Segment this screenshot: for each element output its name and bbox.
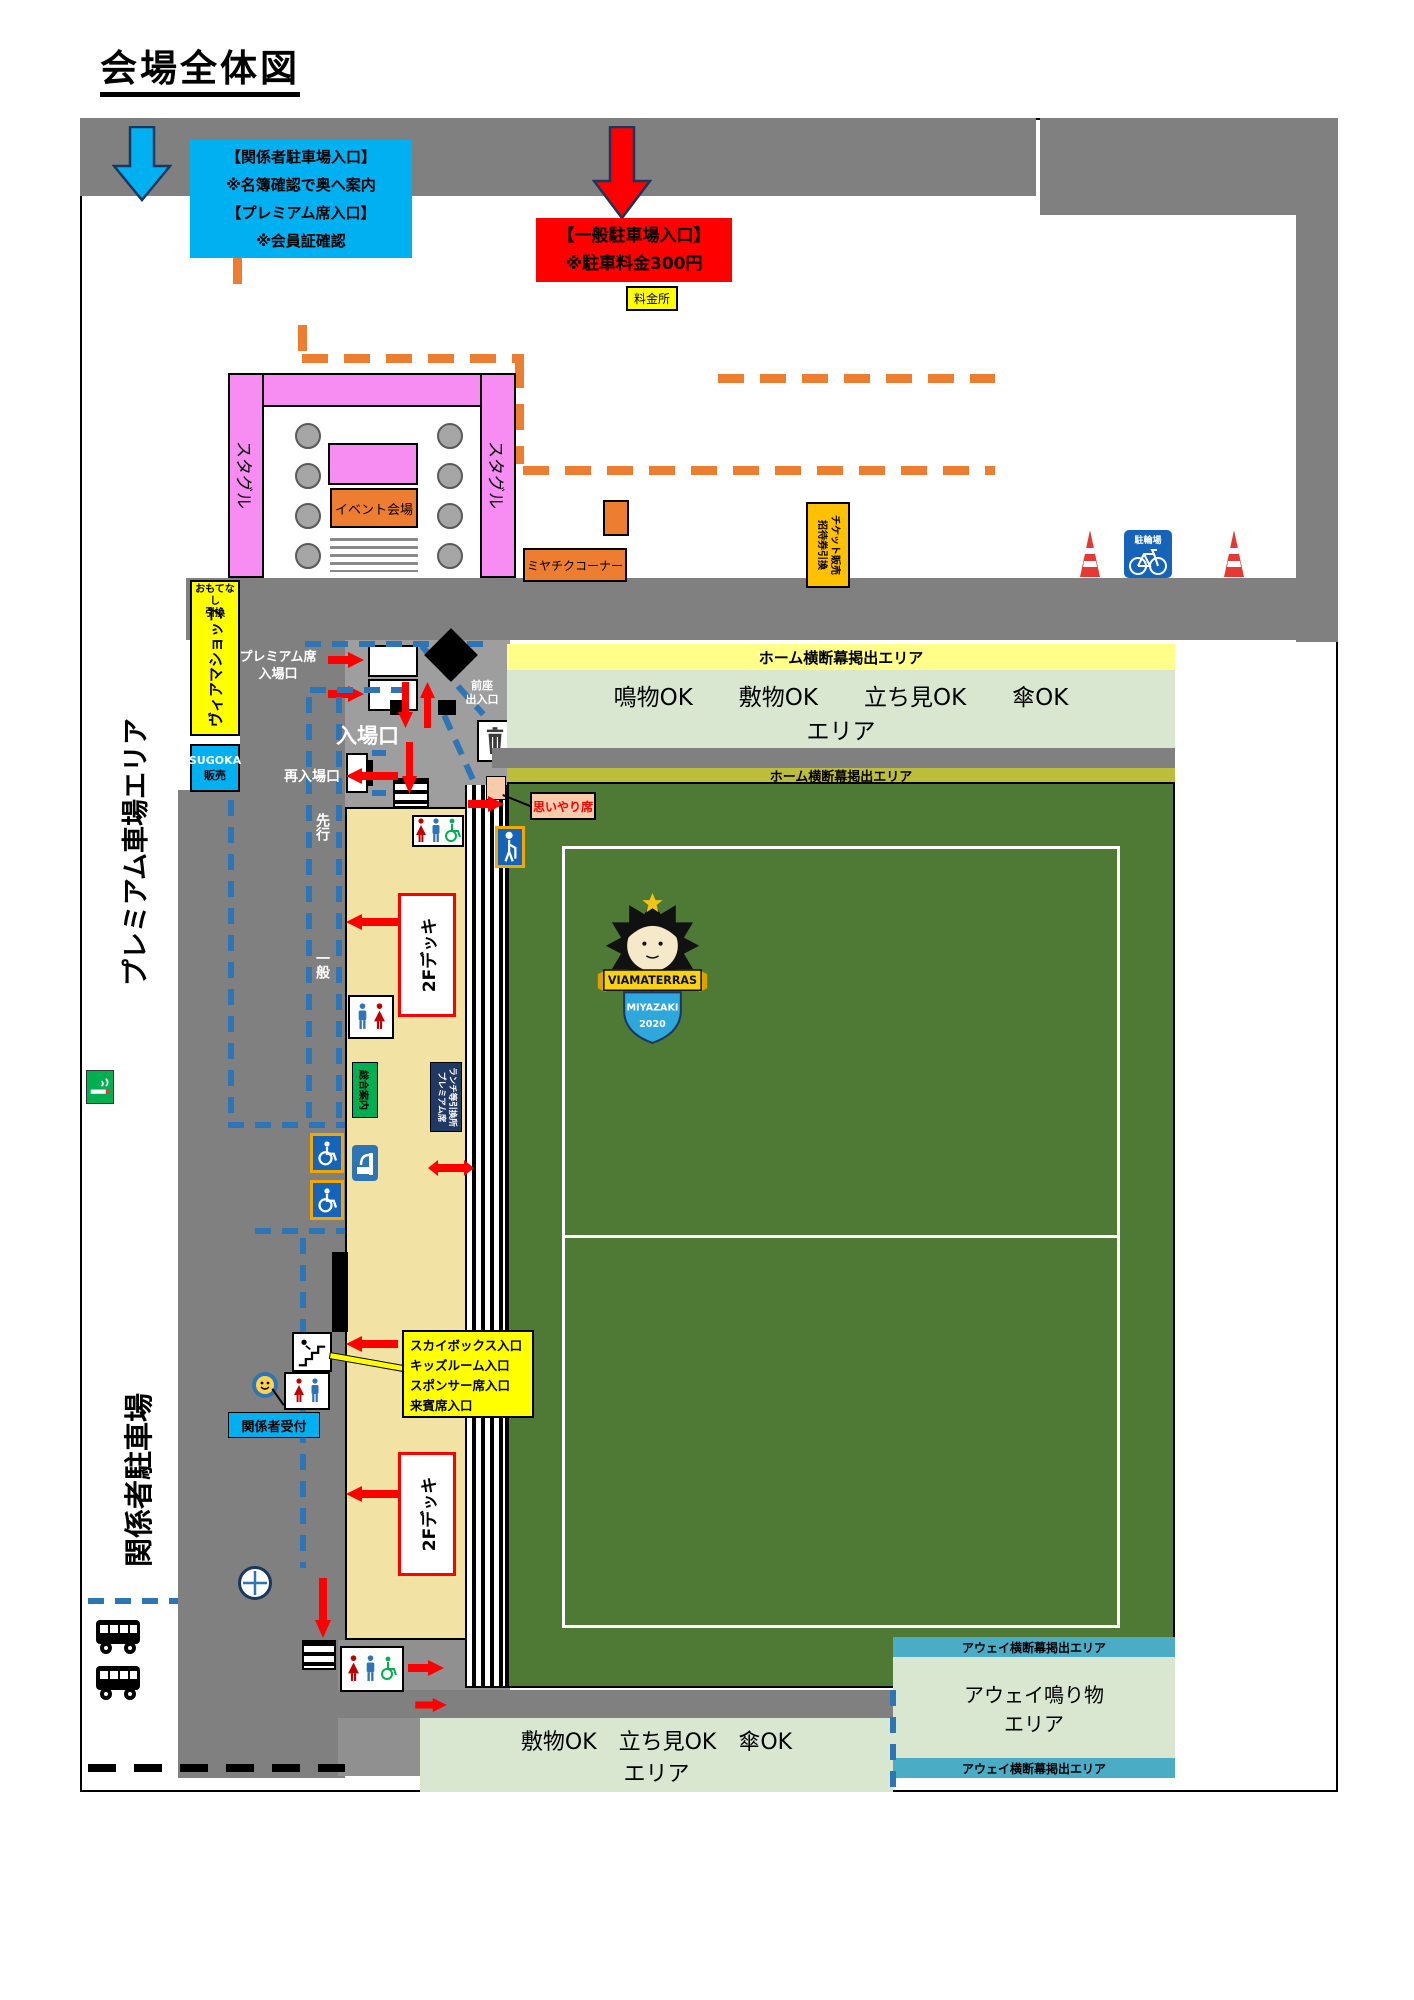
crest-year: 2020 bbox=[639, 1019, 666, 1030]
plaza-circle bbox=[437, 423, 463, 449]
road-top-right bbox=[1040, 118, 1338, 215]
traffic-cone-icon bbox=[1222, 528, 1246, 580]
down-arrow-icon bbox=[402, 742, 417, 794]
walk-route-dash bbox=[372, 790, 386, 796]
premium-exchange-label: ランチ等引換所 プレミアム席 bbox=[433, 1065, 459, 1129]
wheelchair-sign bbox=[310, 1133, 344, 1173]
priority-seat-icon bbox=[499, 830, 521, 864]
skybox-callout-box: スカイボックス入口 キッズルーム入口 スポンサー席入口 来賓席入口 bbox=[402, 1330, 534, 1418]
pitch-halfway-line bbox=[562, 1235, 1120, 1238]
crosshair-icon bbox=[238, 1566, 272, 1600]
plaza-circle bbox=[295, 463, 321, 489]
wheelchair-icon bbox=[315, 1186, 339, 1214]
general-parking-line: ※駐車料金300円 bbox=[565, 250, 702, 278]
home-free-area-line2: エリア bbox=[507, 712, 1175, 746]
smoking-area-sign bbox=[86, 1070, 114, 1104]
toilet-man-icon bbox=[430, 818, 442, 844]
away-banner-strip-top: アウェイ横断幕掲出エリア bbox=[893, 1637, 1175, 1657]
plaza-circle bbox=[295, 543, 321, 569]
plaza-stage bbox=[328, 443, 418, 485]
wheelchair-icon bbox=[381, 1653, 397, 1685]
ticket-booth-label: チケット販売 招待券引換 bbox=[813, 505, 843, 585]
toilet-sign bbox=[412, 815, 464, 847]
smoking-icon bbox=[89, 1074, 111, 1100]
walk-route-dash bbox=[228, 1122, 345, 1128]
invitation-exchange-label: 招待券引換 bbox=[815, 520, 828, 570]
general-lane-label: 一般 bbox=[308, 938, 336, 992]
staff-parking-info-box: 【関係者駐車場入口】 ※名簿確認で奥へ案内 【プレミアム席入口】 ※会員証確認 bbox=[190, 140, 412, 258]
plaza-circle bbox=[437, 503, 463, 529]
premium-gate-box bbox=[368, 645, 418, 677]
viamaterras-crest: VIAMATERRAS MIYAZAKI 2020 bbox=[590, 893, 715, 1045]
bottom-free-area-line1: 敷物OK 立ち見OK 傘OK bbox=[420, 1724, 893, 1756]
walk-route-dash bbox=[306, 697, 312, 1125]
wheelchair-icon bbox=[315, 1139, 339, 1167]
premium-car-area-label: プレミアム車場エリア bbox=[111, 667, 155, 1037]
right-arrow-icon bbox=[468, 796, 504, 812]
away-area-line2: エリア bbox=[893, 1708, 1175, 1737]
toll-booth-label: 料金所 bbox=[626, 286, 678, 311]
staff-parking-line: ※会員証確認 bbox=[256, 227, 346, 255]
double-arrow-icon bbox=[428, 1160, 474, 1176]
home-free-area-line1: 鳴物OK 敷物OK 立ち見OK 傘OK bbox=[507, 678, 1175, 712]
home-banner-strip-bottom: ホーム横断幕掲出エリア bbox=[507, 768, 1175, 782]
bus-icon bbox=[94, 1616, 142, 1658]
toilet-woman-icon bbox=[415, 818, 427, 844]
sponsor-entrance-label: スポンサー席入口 bbox=[410, 1376, 526, 1396]
toilet-sign bbox=[348, 995, 394, 1039]
drinking-fountain-sign bbox=[352, 1145, 378, 1181]
car-route-dash bbox=[515, 362, 524, 464]
walk-route-dash bbox=[336, 697, 342, 1125]
staff-entrance-arrow-icon bbox=[112, 126, 172, 202]
bus-icon bbox=[94, 1662, 142, 1704]
venue-map: 会場全体図 【関係者駐車場入口】 ※名簿確認で奥へ案内 【プレミアム席入口】 ※… bbox=[0, 0, 1414, 2000]
plaza-circle bbox=[437, 543, 463, 569]
priority-lane-label: 先行 bbox=[308, 800, 336, 854]
toilet-woman-icon bbox=[293, 1377, 305, 1405]
down-arrow-icon bbox=[315, 1578, 331, 1638]
general-parking-line: 【一般駐車場入口】 bbox=[558, 222, 711, 250]
road-middle bbox=[186, 578, 1338, 640]
toilet-man-icon bbox=[364, 1653, 377, 1685]
away-banner-strip-bottom: アウェイ横断幕掲出エリア bbox=[893, 1758, 1175, 1778]
guest-entrance-label: 来賓席入口 bbox=[410, 1396, 526, 1416]
walk-route-dash bbox=[88, 1598, 178, 1604]
general-parking-info-box: 【一般駐車場入口】 ※駐車料金300円 bbox=[536, 218, 732, 282]
plaza-top-bar bbox=[262, 373, 482, 407]
staff-parking-area-label: 関係者駐車場 bbox=[115, 1380, 159, 1580]
sugoka-box: SUGOKA 販売 bbox=[190, 744, 240, 792]
left-arrow-icon bbox=[346, 914, 398, 930]
info-center-label: 総合案内 bbox=[354, 1064, 376, 1116]
premium-gate-label: プレミアム席 入場口 bbox=[238, 648, 318, 684]
bottom-free-area-line2: エリア bbox=[420, 1756, 893, 1788]
right-arrow-icon bbox=[415, 1698, 447, 1712]
car-route-dash bbox=[233, 258, 242, 294]
gate-bar bbox=[332, 1252, 348, 1332]
area-separator-dash bbox=[890, 1690, 896, 1790]
car-route-dash bbox=[718, 374, 995, 383]
kidsroom-entrance-label: キッズルーム入口 bbox=[410, 1356, 526, 1376]
stagle-label-right: スタグル bbox=[480, 390, 516, 560]
right-arrow-icon bbox=[408, 1660, 444, 1676]
sugoka-sales-label: 販売 bbox=[204, 768, 226, 783]
omotenashi-label: おもてなし bbox=[192, 584, 238, 608]
toilet-sign bbox=[284, 1372, 330, 1410]
main-gate-label: 入場口 bbox=[336, 720, 399, 750]
left-arrow-icon bbox=[346, 1486, 398, 1502]
toilet-man-icon bbox=[309, 1377, 321, 1405]
sugoka-label: SUGOKA bbox=[189, 753, 241, 768]
car-route-dash bbox=[523, 466, 995, 475]
stairs-bottom bbox=[302, 1640, 336, 1670]
gate-bar bbox=[438, 700, 456, 715]
up-arrow-icon bbox=[420, 682, 435, 728]
stairs-icon bbox=[297, 1337, 327, 1367]
plaza-circle bbox=[295, 423, 321, 449]
boundary-dash bbox=[88, 1764, 345, 1772]
toilet-woman-icon bbox=[373, 1001, 386, 1033]
general-entrance-arrow-icon bbox=[592, 126, 652, 220]
right-arrow-icon bbox=[328, 652, 364, 668]
omoiyari-seat-label: 思いやり席 bbox=[530, 792, 596, 820]
road-right bbox=[1296, 196, 1338, 642]
event-venue-box: イベント会場 bbox=[330, 488, 418, 528]
down-arrow-icon bbox=[398, 682, 413, 728]
miyachiku-corner-box: ミヤチクコーナー bbox=[523, 548, 627, 582]
bicycle-parking-sign: 駐輪場 bbox=[1124, 530, 1172, 578]
home-banner-strip-top: ホーム横断幕掲出エリア bbox=[507, 644, 1175, 670]
left-arrow-icon bbox=[346, 1336, 398, 1352]
walk-route-dash bbox=[372, 750, 386, 756]
deck-2f-label: 2Fデッキ bbox=[407, 900, 447, 1010]
plaza-circle bbox=[295, 503, 321, 529]
plaza-stage-lines bbox=[330, 538, 418, 572]
left-arrow-icon bbox=[346, 768, 398, 784]
skybox-entrance-label: スカイボックス入口 bbox=[410, 1336, 526, 1356]
smiley-icon bbox=[255, 1375, 275, 1395]
away-free-area: アウェイ鳴り物 エリア bbox=[893, 1657, 1175, 1758]
crest-team-name: VIAMATERRAS bbox=[608, 974, 697, 987]
orange-booth bbox=[603, 500, 629, 536]
car-route-dash bbox=[302, 354, 524, 363]
staff-reception-label: 関係者受付 bbox=[228, 1412, 320, 1438]
ticket-sales-label: チケット販売 bbox=[828, 515, 841, 575]
crest-city: MIYAZAKI bbox=[626, 1003, 678, 1014]
page-title: 会場全体図 bbox=[100, 38, 300, 92]
bicycle-icon bbox=[1124, 546, 1172, 578]
toilet-man-icon bbox=[356, 1001, 369, 1033]
skybox-stairs-sign bbox=[292, 1332, 332, 1372]
home-free-area: 鳴物OK 敷物OK 立ち見OK 傘OK エリア bbox=[507, 670, 1175, 748]
via-shop-label: ヴィアマショップ bbox=[192, 607, 238, 727]
drinking-fountain-icon bbox=[355, 1149, 375, 1177]
deck-2f-label: 2Fデッキ bbox=[407, 1459, 447, 1569]
staff-parking-line: 【関係者駐車場入口】 bbox=[226, 143, 376, 171]
terrace-steps bbox=[465, 785, 507, 1688]
priority-seat-sign bbox=[495, 826, 525, 868]
toilet-woman-icon bbox=[347, 1653, 360, 1685]
wheelchair-icon bbox=[445, 818, 461, 844]
via-shop-box: おもてなし 引換 ヴィアマショップ bbox=[190, 580, 240, 736]
bottom-free-area: 敷物OK 立ち見OK 傘OK エリア bbox=[420, 1718, 893, 1792]
away-area-line1: アウェイ鳴り物 bbox=[893, 1679, 1175, 1708]
stagle-label-left: スタグル bbox=[228, 390, 264, 560]
plaza-circle bbox=[437, 463, 463, 489]
walk-route-dash bbox=[228, 800, 234, 1122]
bicycle-parking-label: 駐輪場 bbox=[1124, 533, 1172, 546]
walk-route-dash bbox=[255, 1228, 345, 1234]
toilet-sign bbox=[340, 1646, 404, 1692]
zenza-gate-label: 前座 出入口 bbox=[456, 678, 508, 708]
reentry-gate-label: 再入場口 bbox=[284, 766, 340, 786]
staff-parking-line: 【プレミアム席入口】 bbox=[227, 199, 376, 227]
staff-parking-line: ※名簿確認で奥へ案内 bbox=[226, 171, 376, 199]
traffic-cone-icon bbox=[1078, 528, 1102, 580]
wheelchair-sign bbox=[310, 1180, 344, 1220]
